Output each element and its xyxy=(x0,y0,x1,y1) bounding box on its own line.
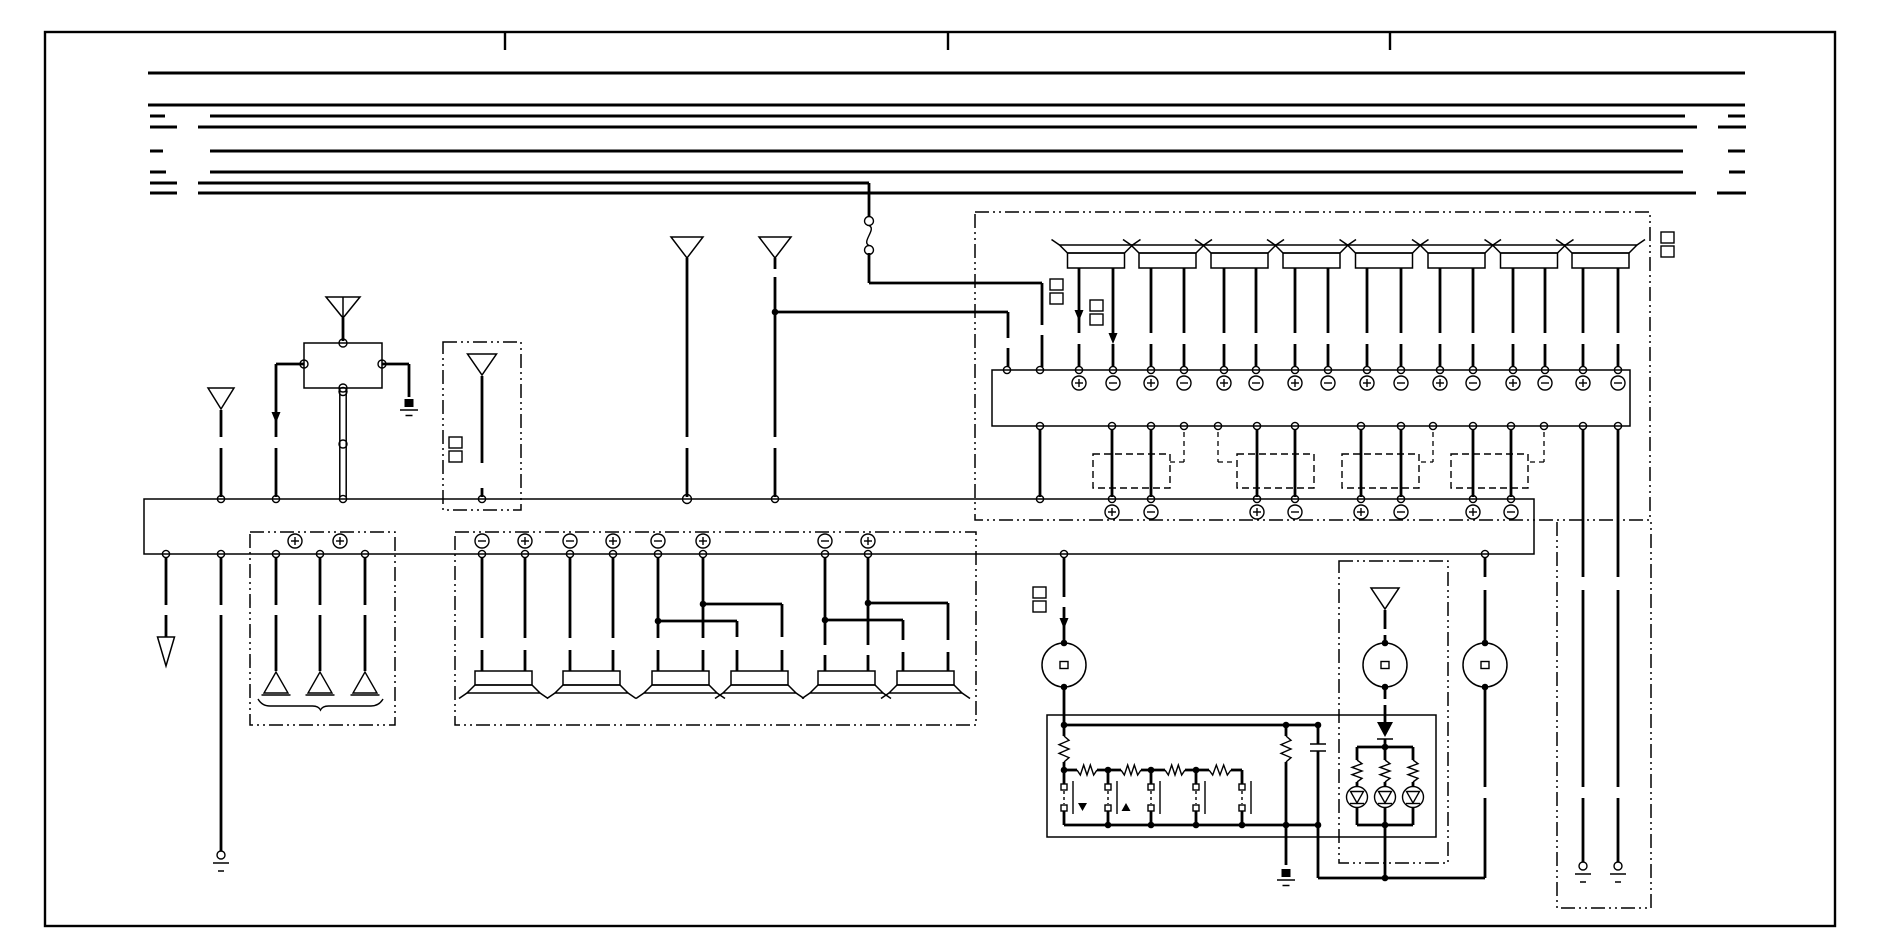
switch-icon xyxy=(1148,781,1160,814)
speaker-icon xyxy=(1195,240,1284,269)
junction-dots xyxy=(655,309,1489,882)
tweeter-icon xyxy=(262,672,291,695)
tweeter-group xyxy=(250,532,395,725)
ground-icon xyxy=(1575,862,1591,882)
polarity-plus-icon xyxy=(1072,376,1086,390)
polarity-minus-icon xyxy=(1177,376,1191,390)
resistor-icon xyxy=(1165,765,1185,775)
arrow-down-icon xyxy=(1109,333,1118,344)
polarity-minus-icon xyxy=(563,534,577,548)
connector-label-icon xyxy=(1050,279,1063,304)
speaker-icon xyxy=(715,671,804,699)
diode-icon xyxy=(1377,722,1393,739)
polarity-minus-icon xyxy=(1394,376,1408,390)
polarity-minus-icon xyxy=(1144,505,1158,519)
arrow-down-icon xyxy=(1060,618,1069,629)
polarity-plus-icon xyxy=(1288,376,1302,390)
lamp-icon xyxy=(1403,787,1424,808)
polarity-plus-icon xyxy=(288,534,302,548)
tweeter-icon xyxy=(351,672,380,695)
ground-icon xyxy=(400,399,418,416)
polarity-minus-icon xyxy=(1288,505,1302,519)
ground-harness xyxy=(1557,522,1651,908)
fuse-icon xyxy=(865,217,874,255)
polarity-plus-icon xyxy=(1250,505,1264,519)
offpage-arrow-icon xyxy=(158,637,175,666)
resistor-icon xyxy=(1352,760,1362,782)
lamp-icons xyxy=(1347,787,1424,808)
polarity-minus-icon xyxy=(1321,376,1335,390)
head-unit xyxy=(144,499,1534,554)
speaker-icon xyxy=(1412,240,1501,269)
tweeter-icon xyxy=(306,672,335,695)
polarity-plus-icon xyxy=(1217,376,1231,390)
resistor-icon xyxy=(1077,765,1097,775)
amp-connector xyxy=(992,370,1630,426)
front-speaker-group xyxy=(455,532,976,725)
antenna-icon xyxy=(326,297,360,318)
resistor-icon xyxy=(1408,760,1418,782)
antenna-icon xyxy=(1371,588,1399,609)
resistor-icon xyxy=(1281,736,1291,762)
amplifier-unit xyxy=(975,212,1650,520)
polarity-plus-icon xyxy=(1576,376,1590,390)
polarity-plus-icon xyxy=(1105,505,1119,519)
arrow-down-icon xyxy=(1075,310,1084,321)
capacitor-icon xyxy=(1310,744,1326,751)
polarity-minus-icon xyxy=(1466,376,1480,390)
drawing-frame xyxy=(45,32,1835,926)
resistor-icon xyxy=(1059,736,1069,762)
speaker-icon xyxy=(1267,240,1356,269)
switch-icon xyxy=(1193,781,1205,814)
polarity-minus-icon xyxy=(1394,505,1408,519)
seek-up-icon xyxy=(1122,803,1131,811)
polarity-minus-icon xyxy=(1611,376,1625,390)
component-boxes xyxy=(144,212,1651,908)
antenna-module xyxy=(304,343,382,388)
connector-labels xyxy=(449,232,1674,612)
antenna-icon xyxy=(208,388,234,409)
speaker-icon xyxy=(547,671,636,699)
speaker-icon xyxy=(1052,240,1141,269)
speaker-icon xyxy=(1123,240,1212,269)
polarity-plus-icon xyxy=(1144,376,1158,390)
joint-connector-icon xyxy=(1042,643,1086,687)
polarity-plus-icon xyxy=(333,534,347,548)
speaker-icon xyxy=(881,671,970,699)
coax-cable xyxy=(340,388,346,497)
speaker-icon xyxy=(1556,240,1645,269)
polarity-minus-icon xyxy=(475,534,489,548)
connector-label-icon xyxy=(449,437,462,462)
joint-connector-icon xyxy=(1363,643,1407,687)
polarity-plus-icon xyxy=(1354,505,1368,519)
harness-bus-lines xyxy=(148,73,1746,193)
wiring-diagram-page xyxy=(0,0,1900,950)
connector-label-icon xyxy=(1090,300,1103,325)
resistor-icon xyxy=(1380,760,1390,782)
polarity-plus-icon xyxy=(696,534,710,548)
resistor-icon xyxy=(1121,765,1141,775)
polarity-minus-icon xyxy=(1504,505,1518,519)
front-speakers xyxy=(459,671,970,699)
antenna-icon xyxy=(468,354,497,375)
speaker-icon xyxy=(1340,240,1429,269)
switch-icon xyxy=(1105,781,1117,814)
arrow-down-icon xyxy=(272,412,281,423)
lamp-icon xyxy=(1347,787,1368,808)
polarity-minus-icon xyxy=(1538,376,1552,390)
ground-icon xyxy=(1610,862,1626,882)
speaker-icon xyxy=(1485,240,1574,269)
polarity-plus-icon xyxy=(1506,376,1520,390)
polarity-minus-icon xyxy=(818,534,832,548)
tweeter-icons xyxy=(258,672,383,710)
polarity-plus-icon xyxy=(1360,376,1374,390)
resistor-icon xyxy=(1209,765,1231,775)
lamp-icon xyxy=(1375,787,1396,808)
connector-label-icon xyxy=(1033,587,1046,612)
polarity-plus-icon xyxy=(518,534,532,548)
resistor-icons xyxy=(1059,736,1418,782)
connector-label-icon xyxy=(1661,232,1674,257)
wiring-diagram-canvas xyxy=(0,0,1900,950)
cd-changer-unit xyxy=(1339,561,1448,863)
switch-icons xyxy=(1061,781,1251,814)
polarity-minus-icon xyxy=(651,534,665,548)
ground-icon xyxy=(213,851,229,871)
polarity-plus-icon xyxy=(606,534,620,548)
polarity-plus-icon xyxy=(861,534,875,548)
speaker-icon xyxy=(459,671,548,699)
antenna-icon xyxy=(759,237,791,258)
polarity-plus-icon xyxy=(1466,505,1480,519)
polarity-minus-icon xyxy=(1249,376,1263,390)
amplifier-speakers xyxy=(1052,240,1646,269)
speaker-icon xyxy=(802,671,891,699)
ground-icon xyxy=(1277,869,1295,886)
wires xyxy=(166,183,1618,878)
polarity-plus-icon xyxy=(1433,376,1447,390)
switch-icon xyxy=(1239,781,1251,814)
joint-connector-icon xyxy=(1463,643,1507,687)
joint-connectors xyxy=(1042,643,1507,687)
switch-icon xyxy=(1061,781,1073,814)
polarity-minus-icon xyxy=(1106,376,1120,390)
antenna-icon xyxy=(671,237,703,258)
speaker-icon xyxy=(636,671,725,699)
seek-down-icon xyxy=(1078,803,1087,811)
